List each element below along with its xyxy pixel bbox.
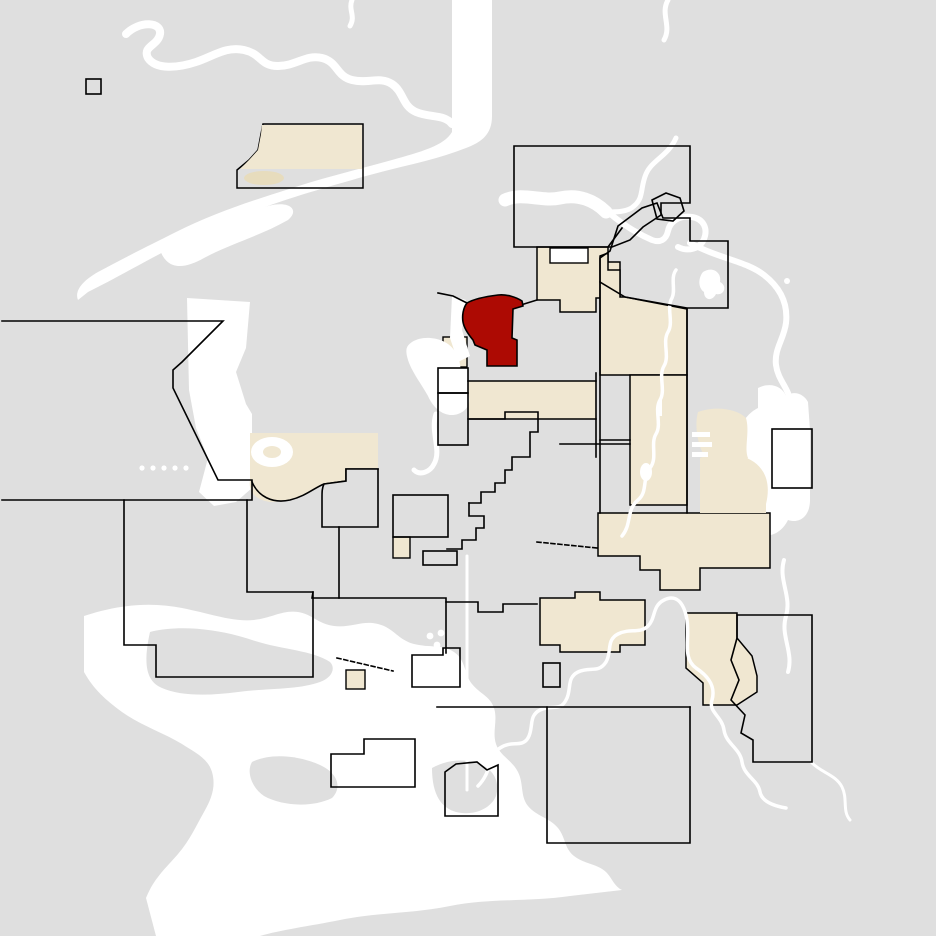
river-top-edge-1: [350, 0, 352, 26]
boundary-cell-white: [438, 368, 468, 393]
urban-village-square-2: [346, 670, 365, 689]
town-nw-hamlet: [244, 171, 284, 185]
locator-map-svg: [0, 0, 936, 936]
lake-in-column: [640, 463, 652, 481]
urban-south-central: [540, 592, 645, 652]
locator-map: [0, 0, 936, 936]
urban-sturgeon-cell: [550, 248, 588, 263]
lake-ring-island: [263, 446, 281, 458]
urban-village-square-1: [393, 537, 410, 558]
urban-center-band: [468, 381, 596, 419]
river-top-edge-2: [664, 0, 668, 40]
lake-dot-east: [784, 278, 790, 284]
water-tick-column: [658, 400, 662, 416]
urban-ne-column: [630, 375, 687, 505]
